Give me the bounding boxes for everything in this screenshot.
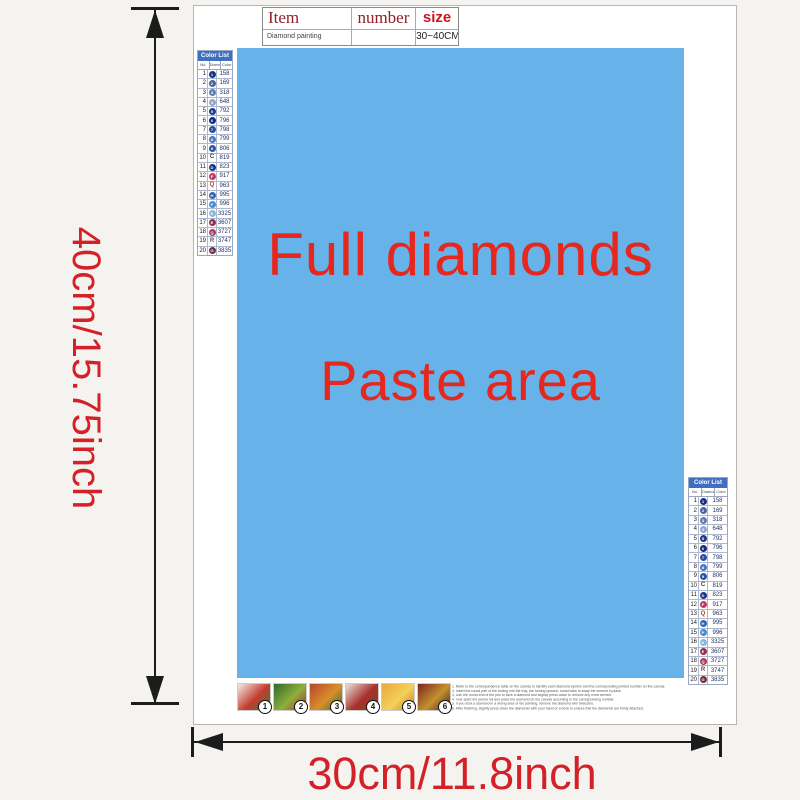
color-list-row: 66796 — [198, 115, 232, 124]
dmc-code: 806 — [708, 573, 727, 579]
step-thumbnail: 1 — [237, 683, 271, 711]
item-info-table: Item number size Diamond painting 30~40C… — [262, 7, 459, 46]
col-no: No. — [198, 61, 209, 69]
dmc-code: 3325 — [217, 211, 232, 217]
instruction-line: 6. After finishing, slightly press down … — [452, 707, 684, 711]
color-list-row: 11D823 — [198, 162, 232, 171]
color-number: 20 — [198, 248, 207, 254]
color-list-row: 18Q3727 — [689, 656, 727, 665]
diamond-symbol-icon: 3 — [207, 89, 217, 97]
diamond-symbol-icon: 8 — [207, 135, 217, 143]
dmc-code: 158 — [217, 71, 232, 77]
dmc-code: 648 — [217, 99, 232, 105]
item-value: Diamond painting — [263, 30, 351, 45]
color-number: 20 — [689, 677, 698, 683]
dmc-code: 823 — [708, 592, 727, 598]
diamond-symbol-icon: Q — [207, 182, 217, 190]
color-number: 14 — [198, 192, 207, 198]
color-list-row: 16K3325 — [689, 637, 727, 646]
dmc-code: 963 — [708, 611, 727, 617]
diamond-symbol-icon: E — [698, 648, 708, 656]
diamond-symbol-icon: 9 — [698, 572, 708, 580]
diamond-symbol-icon: G — [207, 247, 217, 255]
color-list-row: 33318 — [198, 88, 232, 97]
color-number: 13 — [198, 183, 207, 189]
col-diamond: Diamond — [701, 488, 714, 496]
color-number: 9 — [198, 146, 207, 152]
dmc-code: 3835 — [217, 248, 232, 254]
color-list-row: 22169 — [689, 505, 727, 514]
height-arrow-down-head-icon — [146, 676, 164, 704]
diamond-symbol-icon: R — [698, 666, 708, 674]
color-list-row: 11158 — [198, 70, 232, 78]
instruction-text: 1. Refer to the correspondence table on … — [452, 685, 684, 711]
color-list-row: 77798 — [689, 552, 727, 561]
color-number: 2 — [689, 508, 698, 514]
width-arrow-line — [194, 741, 720, 743]
size-header: size — [415, 8, 458, 29]
color-number: 9 — [689, 573, 698, 579]
color-number: 19 — [689, 668, 698, 674]
color-list-row: 88799 — [198, 134, 232, 143]
step-number-badge: 5 — [402, 700, 416, 714]
color-number: 10 — [689, 583, 698, 589]
diamond-symbol-icon: K — [698, 638, 708, 646]
dmc-code: 819 — [217, 155, 232, 161]
diamond-symbol-icon: 2 — [698, 506, 708, 514]
col-diamond: Diamond — [209, 61, 221, 69]
color-number: 11 — [198, 164, 207, 170]
color-list-row: 15P996 — [689, 628, 727, 637]
dmc-code: 3727 — [217, 229, 232, 235]
color-list-row: 99806 — [689, 571, 727, 580]
diamond-symbol-icon: 4 — [698, 525, 708, 533]
step-number-badge: 4 — [366, 700, 380, 714]
color-list-row: 14H995 — [198, 190, 232, 199]
color-list-row: 12F917 — [689, 599, 727, 608]
dmc-code: 798 — [217, 127, 232, 133]
color-number: 2 — [198, 80, 207, 86]
color-number: 7 — [689, 555, 698, 561]
dmc-code: 318 — [708, 517, 727, 523]
step-thumbnails: 123456 — [237, 683, 451, 711]
color-number: 1 — [198, 71, 207, 77]
dmc-code: 796 — [708, 545, 727, 551]
width-arrow-right-head-icon — [691, 733, 719, 751]
dmc-code: 169 — [708, 508, 727, 514]
dmc-code: 799 — [217, 136, 232, 142]
step-thumbnail: 3 — [309, 683, 343, 711]
diamond-symbol-icon: E — [207, 219, 217, 227]
step-thumbnail: 5 — [381, 683, 415, 711]
diamond-symbol-icon: 4 — [207, 98, 217, 106]
dmc-code: 798 — [708, 555, 727, 561]
diamond-symbol-icon: G — [698, 676, 708, 684]
color-list-row: 10C819 — [198, 153, 232, 162]
dmc-code: 648 — [708, 526, 727, 532]
dmc-code: 318 — [217, 90, 232, 96]
step-number-badge: 6 — [438, 700, 452, 714]
color-list-left-rows: 1115822169333184464855792667967779888799… — [198, 70, 232, 255]
color-list-row: 14H995 — [689, 618, 727, 627]
color-list-row: 18Q3727 — [198, 227, 232, 236]
dmc-code: 158 — [708, 498, 727, 504]
dmc-code: 917 — [217, 173, 232, 179]
diamond-symbol-icon: F — [207, 172, 217, 180]
color-list-row: 11158 — [689, 497, 727, 505]
col-no: No. — [689, 488, 701, 496]
color-number: 16 — [689, 639, 698, 645]
diamond-symbol-icon: H — [207, 191, 217, 199]
diamond-symbol-icon: 5 — [698, 535, 708, 543]
color-list-row: 55792 — [198, 106, 232, 115]
color-number: 15 — [689, 630, 698, 636]
color-list-row: 88799 — [689, 562, 727, 571]
color-list-row: 11D823 — [689, 590, 727, 599]
color-list-left-columns: No. Diamond Color — [198, 61, 232, 70]
diamond-symbol-icon: K — [207, 209, 217, 217]
dmc-code: 996 — [217, 201, 232, 207]
product-image: 40cm/15.75inch Item number size Diamond … — [0, 0, 800, 800]
width-arrow-left-head-icon — [195, 733, 223, 751]
color-number: 5 — [689, 536, 698, 542]
color-number: 12 — [689, 602, 698, 608]
color-list-row: 22169 — [198, 78, 232, 87]
color-list-row: 13Q963 — [198, 181, 232, 190]
color-number: 6 — [689, 545, 698, 551]
dmc-code: 3607 — [708, 649, 727, 655]
dmc-code: 917 — [708, 602, 727, 608]
dmc-code: 799 — [708, 564, 727, 570]
color-list-row: 12F917 — [198, 171, 232, 180]
color-list-row: 44648 — [198, 97, 232, 106]
diamond-symbol-icon: 1 — [698, 497, 708, 505]
height-dimension-label: 40cm/15.75inch — [62, 208, 108, 528]
dmc-code: 796 — [217, 118, 232, 124]
step-thumbnail: 4 — [345, 683, 379, 711]
color-list-row: 55792 — [689, 534, 727, 543]
color-list-row: 16K3325 — [198, 208, 232, 217]
step-number-badge: 3 — [330, 700, 344, 714]
dmc-code: 792 — [217, 108, 232, 114]
diamond-symbol-icon: R — [207, 237, 217, 245]
paste-area: Full diamonds Paste area — [237, 48, 684, 678]
dmc-code: 963 — [217, 183, 232, 189]
color-list-row: 13Q963 — [689, 609, 727, 618]
color-list-row: 77798 — [198, 125, 232, 134]
diamond-symbol-icon: 8 — [698, 563, 708, 571]
col-color: Color — [714, 488, 727, 496]
color-number: 5 — [198, 108, 207, 114]
paste-area-subtitle: Paste area — [237, 348, 684, 413]
diamond-symbol-icon: 2 — [207, 79, 217, 87]
color-number: 18 — [689, 658, 698, 664]
diamond-symbol-icon: D — [698, 591, 708, 599]
width-arrow-right-cap — [719, 727, 722, 757]
diamond-symbol-icon: 7 — [207, 126, 217, 134]
dmc-code: 3747 — [217, 238, 232, 244]
dmc-code: 996 — [708, 630, 727, 636]
color-number: 7 — [198, 127, 207, 133]
color-number: 19 — [198, 238, 207, 244]
color-number: 16 — [198, 211, 207, 217]
diamond-symbol-icon: P — [207, 200, 217, 208]
diamond-symbol-icon: 6 — [207, 116, 217, 124]
diamond-symbol-icon: H — [698, 619, 708, 627]
dmc-code: 3835 — [708, 677, 727, 683]
step-number-badge: 1 — [258, 700, 272, 714]
color-list-right-columns: No. Diamond Color — [689, 488, 727, 497]
item-header: Item — [263, 8, 351, 29]
color-list-left-title: Color List — [198, 51, 232, 61]
color-number: 18 — [198, 229, 207, 235]
dmc-code: 3747 — [708, 668, 727, 674]
dmc-code: 169 — [217, 80, 232, 86]
diamond-symbol-icon: Q — [698, 657, 708, 665]
color-number: 13 — [689, 611, 698, 617]
color-number: 3 — [689, 517, 698, 523]
diamond-symbol-icon: F — [698, 600, 708, 608]
diamond-symbol-icon: Q — [207, 228, 217, 236]
height-arrow-line — [154, 10, 156, 704]
diamond-symbol-icon: 1 — [207, 70, 217, 78]
color-number: 15 — [198, 201, 207, 207]
color-list-row: 33318 — [689, 515, 727, 524]
color-number: 14 — [689, 620, 698, 626]
color-list-row: 19R3747 — [198, 236, 232, 245]
color-list-row: 17E3607 — [689, 647, 727, 656]
number-value — [351, 30, 415, 45]
color-number: 11 — [689, 592, 698, 598]
dmc-code: 3325 — [708, 639, 727, 645]
diamond-symbol-icon: C — [698, 582, 708, 590]
dmc-code: 823 — [217, 164, 232, 170]
col-color: Color — [220, 61, 232, 69]
dmc-code: 806 — [217, 146, 232, 152]
diamond-symbol-icon: 5 — [207, 107, 217, 115]
size-value: 30~40CM — [415, 30, 458, 45]
color-number: 17 — [689, 649, 698, 655]
diamond-symbol-icon: 7 — [698, 553, 708, 561]
color-number: 4 — [198, 99, 207, 105]
color-number: 1 — [689, 498, 698, 504]
item-table-header-row: Item number size — [263, 8, 458, 29]
color-list-left: Color List No. Diamond Color 11158221693… — [197, 50, 233, 256]
color-number: 12 — [198, 173, 207, 179]
color-list-right: Color List No. Diamond Color 11158221693… — [688, 477, 728, 685]
color-number: 8 — [689, 564, 698, 570]
dmc-code: 819 — [708, 583, 727, 589]
step-thumbnail: 2 — [273, 683, 307, 711]
diamond-symbol-icon: 6 — [698, 544, 708, 552]
number-header: number — [351, 8, 415, 29]
diamond-symbol-icon: Q — [698, 610, 708, 618]
color-list-right-rows: 1115822169333184464855792667967779888799… — [689, 497, 727, 684]
color-list-right-title: Color List — [689, 478, 727, 488]
dmc-code: 3607 — [217, 220, 232, 226]
dmc-code: 792 — [708, 536, 727, 542]
diamond-symbol-icon: C — [207, 154, 217, 162]
color-list-row: 66796 — [689, 543, 727, 552]
diamond-symbol-icon: D — [207, 163, 217, 171]
item-table-data-row: Diamond painting 30~40CM — [263, 29, 458, 45]
paste-area-title: Full diamonds — [237, 220, 684, 289]
step-thumbnail: 6 — [417, 683, 451, 711]
height-arrow-up-head-icon — [146, 10, 164, 38]
dmc-code: 3727 — [708, 658, 727, 664]
color-number: 10 — [198, 155, 207, 161]
color-number: 4 — [689, 526, 698, 532]
height-arrow-bottom-cap — [131, 702, 179, 705]
color-list-row: 19R3747 — [689, 665, 727, 674]
color-number: 8 — [198, 136, 207, 142]
color-number: 17 — [198, 220, 207, 226]
dmc-code: 995 — [708, 620, 727, 626]
color-list-row: 99806 — [198, 143, 232, 152]
color-list-row: 20G3835 — [198, 246, 232, 255]
color-list-row: 15P996 — [198, 199, 232, 208]
color-list-row: 20G3835 — [689, 675, 727, 684]
diamond-symbol-icon: 9 — [207, 144, 217, 152]
color-list-row: 10C819 — [689, 581, 727, 590]
color-list-row: 17E3607 — [198, 218, 232, 227]
color-number: 3 — [198, 90, 207, 96]
dmc-code: 995 — [217, 192, 232, 198]
diamond-symbol-icon: 3 — [698, 516, 708, 524]
color-list-row: 44648 — [689, 524, 727, 533]
diamond-symbol-icon: P — [698, 629, 708, 637]
color-number: 6 — [198, 118, 207, 124]
step-number-badge: 2 — [294, 700, 308, 714]
width-dimension-label: 30cm/11.8inch — [277, 748, 627, 800]
